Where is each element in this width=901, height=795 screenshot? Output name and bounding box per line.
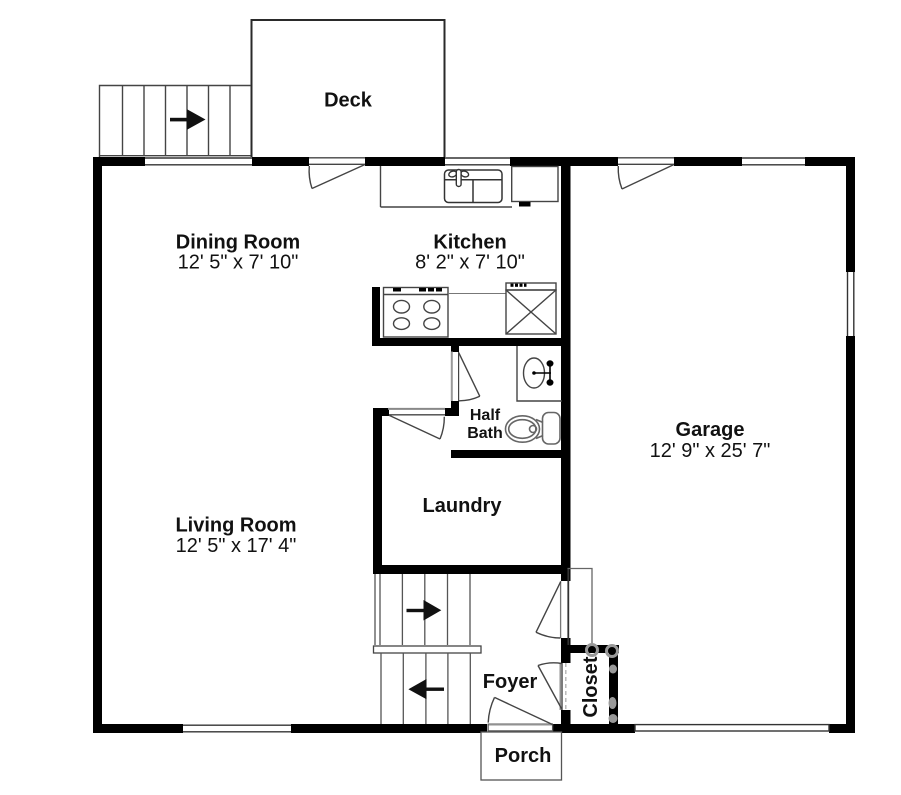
svg-text:8' 2" x 7' 10": 8' 2" x 7' 10" [415,252,525,274]
svg-text:Closet: Closet [580,656,602,717]
svg-text:Dining Room: Dining Room [176,232,300,254]
svg-text:Garage: Garage [676,419,745,441]
svg-text:Deck: Deck [324,90,373,112]
svg-text:12' 5" x 17' 4": 12' 5" x 17' 4" [176,535,297,557]
svg-text:12' 9" x 25' 7": 12' 9" x 25' 7" [650,440,771,462]
svg-text:Living Room: Living Room [175,515,296,537]
svg-text:Kitchen: Kitchen [433,232,506,254]
svg-text:Laundry: Laundry [423,495,503,517]
svg-text:Bath: Bath [467,425,503,442]
svg-text:Half: Half [470,407,501,424]
svg-text:Foyer: Foyer [483,671,538,693]
svg-text:12' 5" x 7' 10": 12' 5" x 7' 10" [178,252,299,274]
svg-text:Porch: Porch [495,745,552,767]
